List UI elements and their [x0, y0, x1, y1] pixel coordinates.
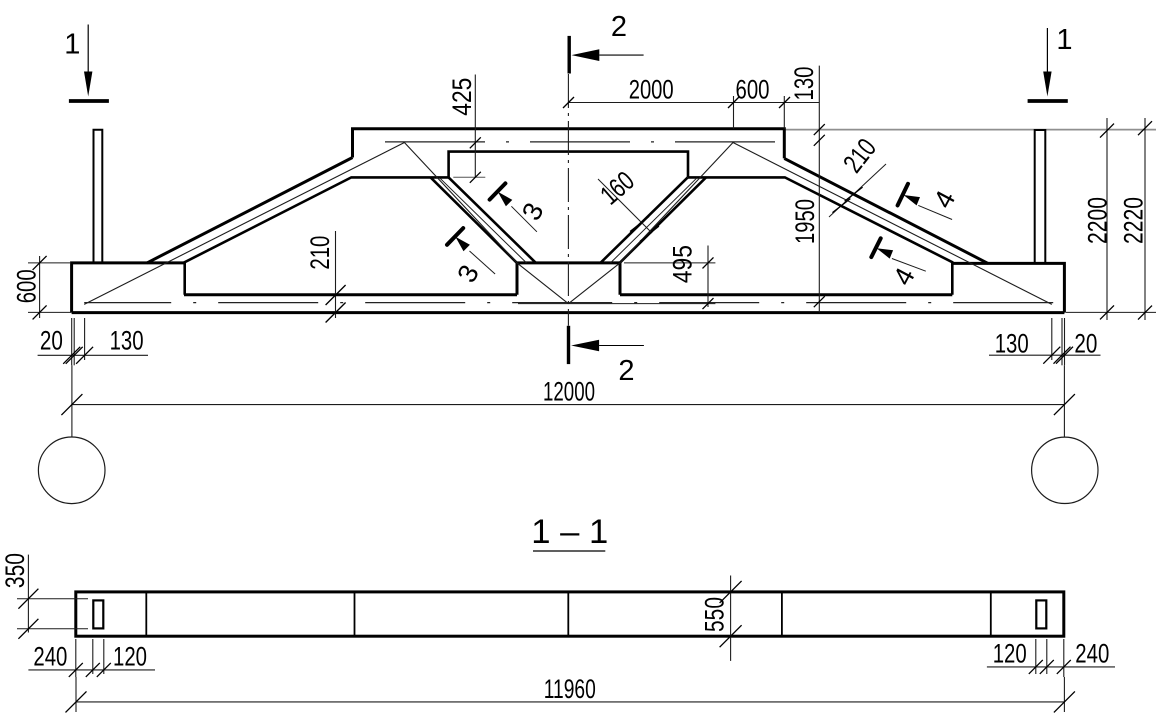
svg-text:495: 495: [668, 245, 698, 283]
svg-text:2: 2: [618, 355, 634, 387]
svg-text:2000: 2000: [629, 74, 674, 104]
svg-text:120: 120: [113, 642, 147, 672]
svg-text:1: 1: [64, 29, 80, 61]
svg-text:130: 130: [110, 325, 144, 355]
svg-text:130: 130: [789, 67, 819, 101]
svg-text:2: 2: [611, 11, 627, 43]
svg-text:130: 130: [995, 329, 1029, 359]
svg-text:210: 210: [305, 236, 335, 270]
svg-text:1: 1: [1056, 24, 1072, 56]
svg-text:1950: 1950: [790, 199, 820, 244]
svg-text:2220: 2220: [1118, 197, 1148, 244]
svg-text:600: 600: [12, 269, 42, 303]
svg-text:20: 20: [40, 325, 63, 355]
svg-text:120: 120: [993, 638, 1027, 668]
svg-text:240: 240: [33, 642, 67, 672]
svg-text:20: 20: [1074, 329, 1097, 359]
svg-text:425: 425: [447, 78, 477, 116]
svg-text:600: 600: [736, 74, 770, 104]
svg-text:240: 240: [1075, 638, 1109, 668]
svg-text:2200: 2200: [1083, 197, 1113, 244]
svg-text:350: 350: [0, 553, 30, 588]
svg-text:11960: 11960: [544, 674, 596, 704]
svg-text:1 – 1: 1 – 1: [531, 513, 608, 551]
svg-text:12000: 12000: [543, 377, 595, 407]
svg-text:550: 550: [700, 597, 730, 632]
